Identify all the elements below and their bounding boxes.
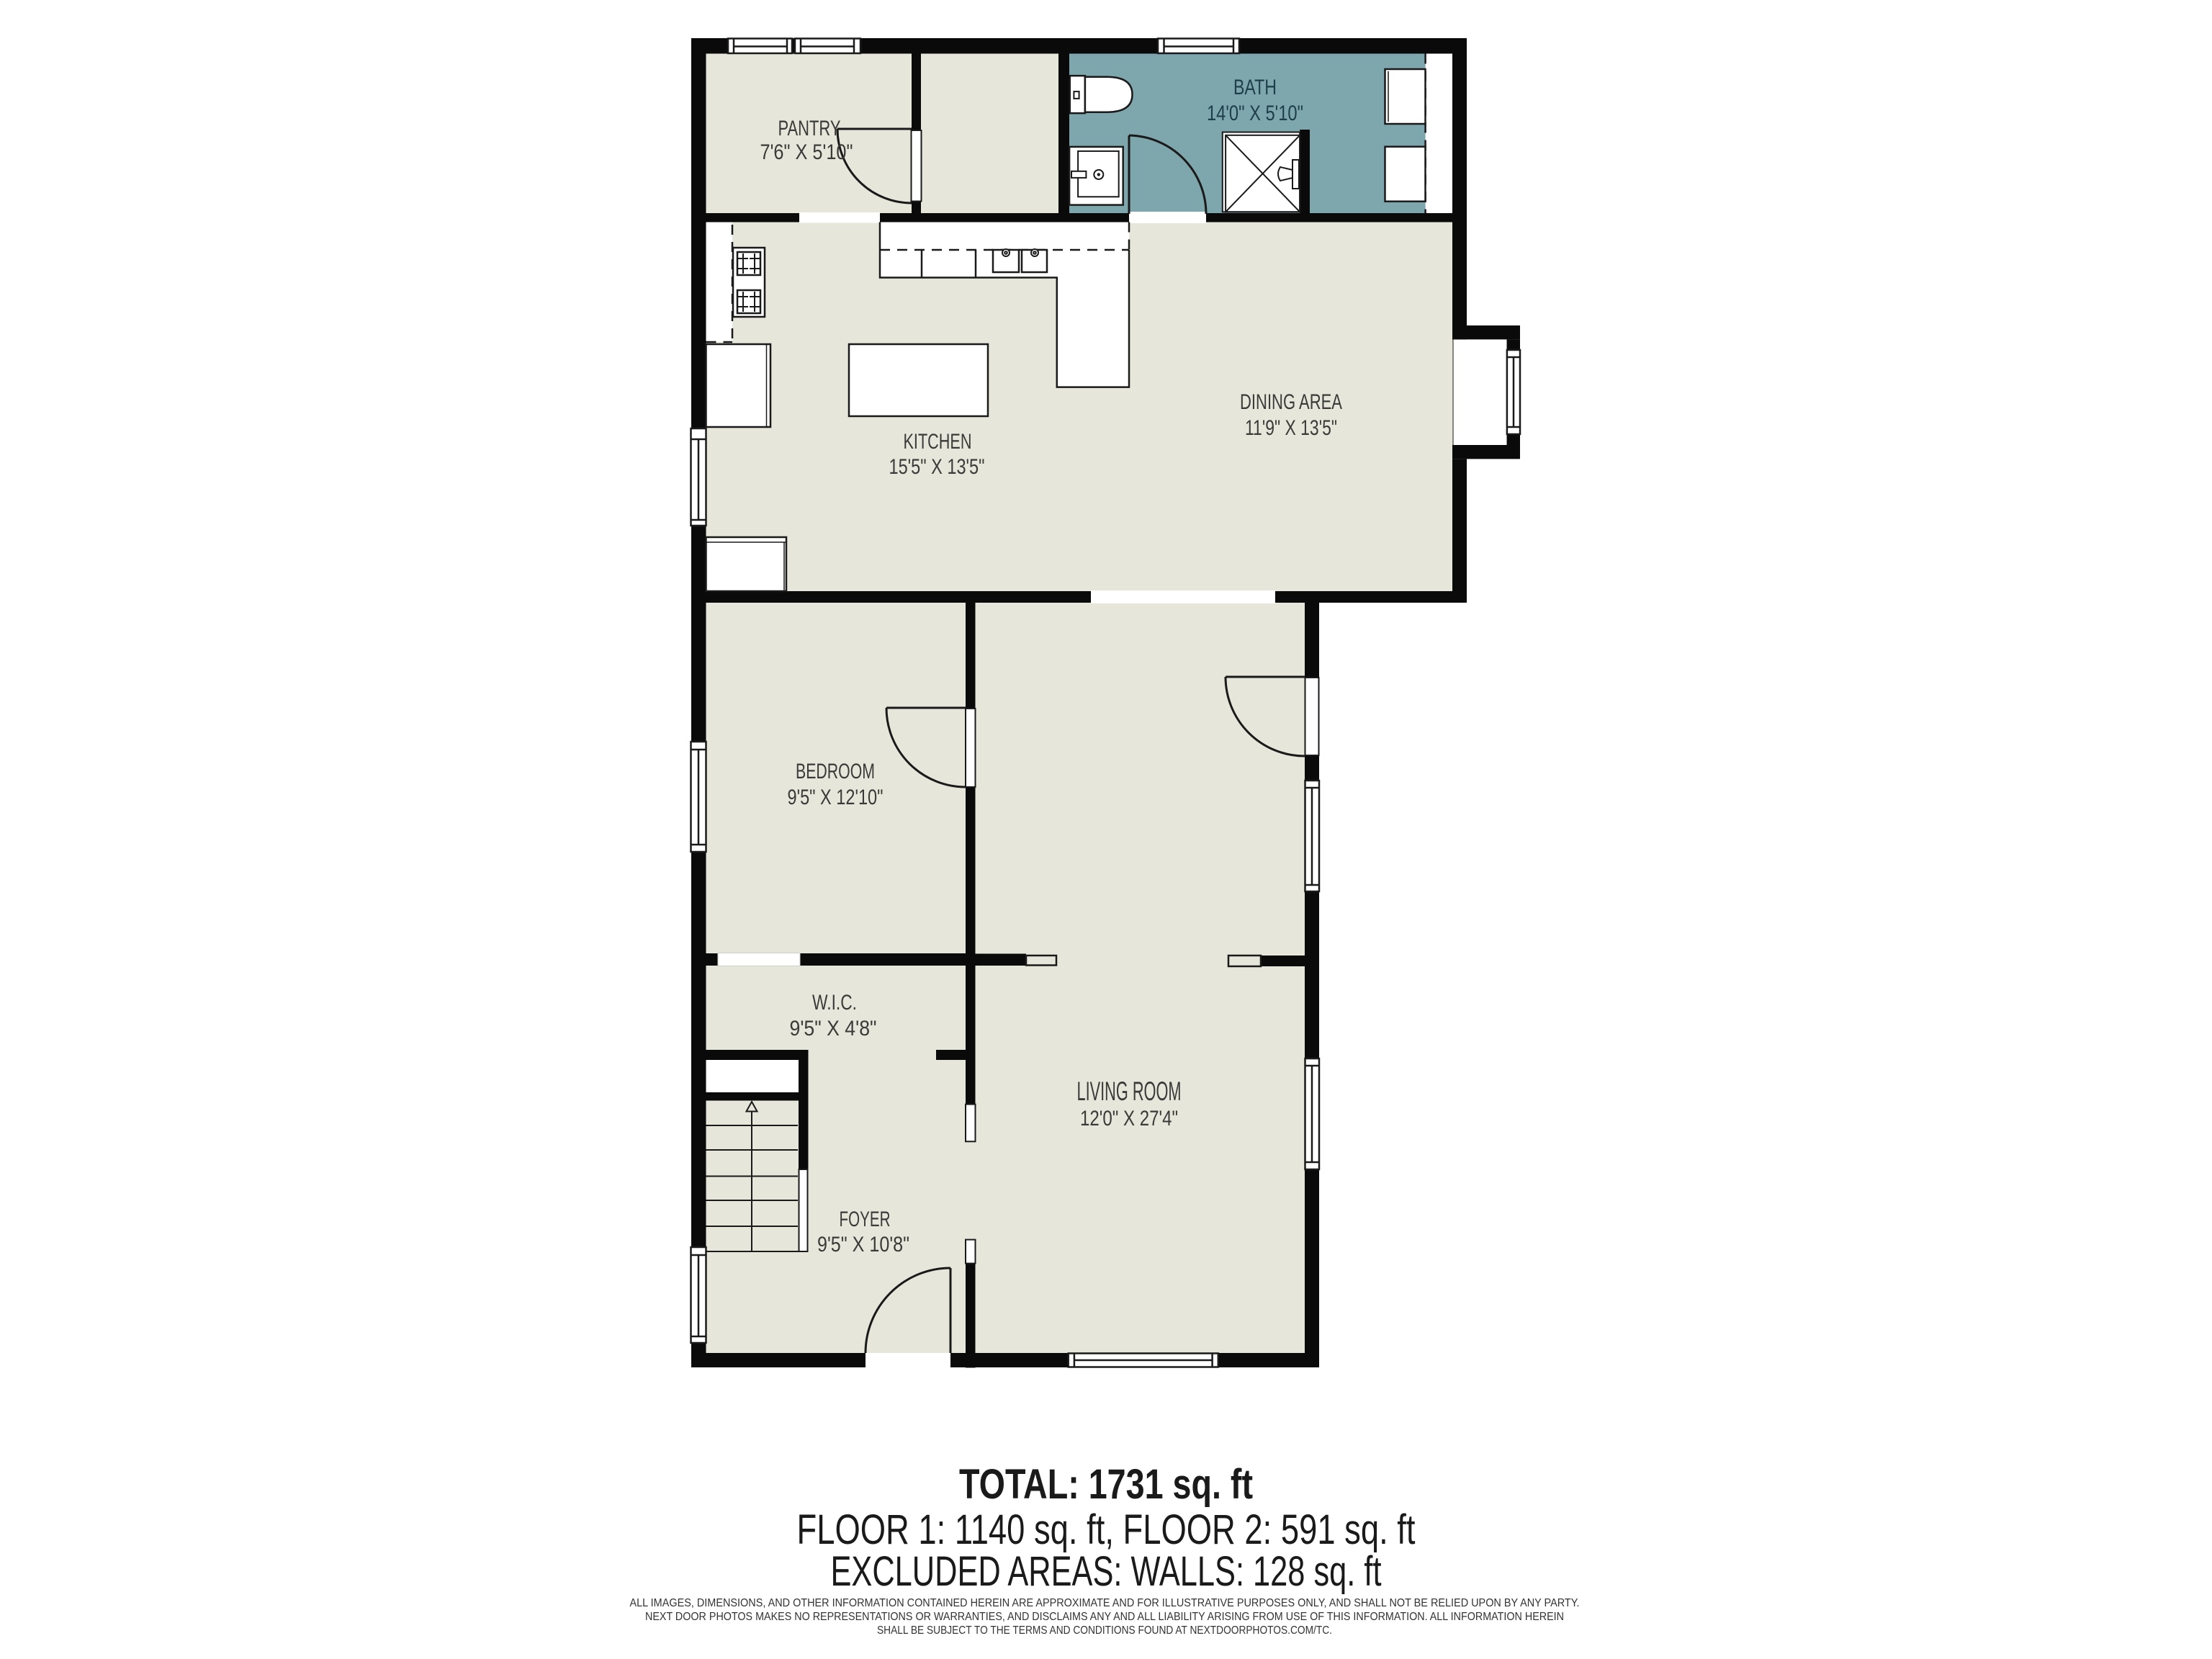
svg-text:SHALL BE SUBJECT TO THE TERMS: SHALL BE SUBJECT TO THE TERMS AND CONDIT… bbox=[877, 1624, 1332, 1637]
svg-text:15'5" X 13'5": 15'5" X 13'5" bbox=[889, 455, 985, 479]
svg-text:EXCLUDED AREAS: WALLS: 128 sq.: EXCLUDED AREAS: WALLS: 128 sq. ft bbox=[831, 1548, 1382, 1595]
svg-text:7'6" X 5'10": 7'6" X 5'10" bbox=[760, 140, 853, 164]
svg-text:BATH: BATH bbox=[1233, 76, 1277, 99]
svg-text:BEDROOM: BEDROOM bbox=[796, 760, 875, 783]
svg-text:PANTRY: PANTRY bbox=[778, 117, 841, 140]
svg-text:ALL IMAGES, DIMENSIONS, AND OT: ALL IMAGES, DIMENSIONS, AND OTHER INFORM… bbox=[630, 1597, 1580, 1609]
svg-text:9'5" X 12'10": 9'5" X 12'10" bbox=[788, 786, 884, 809]
svg-text:LIVING ROOM: LIVING ROOM bbox=[1077, 1076, 1182, 1106]
svg-text:KITCHEN: KITCHEN bbox=[904, 430, 972, 454]
svg-text:9'5" X 10'8": 9'5" X 10'8" bbox=[817, 1233, 909, 1256]
svg-text:11'9" X 13'5": 11'9" X 13'5" bbox=[1245, 416, 1337, 440]
svg-text:FOYER: FOYER bbox=[840, 1208, 891, 1231]
svg-text:9'5" X 4'8": 9'5" X 4'8" bbox=[790, 1017, 877, 1040]
svg-text:14'0" X 5'10": 14'0" X 5'10" bbox=[1207, 102, 1303, 125]
svg-text:W.I.C.: W.I.C. bbox=[812, 991, 857, 1015]
svg-text:FLOOR 1: 1140 sq. ft, FLOOR 2:: FLOOR 1: 1140 sq. ft, FLOOR 2: 591 sq. f… bbox=[797, 1506, 1416, 1553]
svg-text:TOTAL: 1731 sq. ft: TOTAL: 1731 sq. ft bbox=[959, 1461, 1253, 1508]
svg-text:DINING AREA: DINING AREA bbox=[1240, 390, 1342, 414]
svg-text:12'0" X 27'4": 12'0" X 27'4" bbox=[1080, 1107, 1178, 1130]
svg-text:NEXT DOOR PHOTOS MAKES NO REPR: NEXT DOOR PHOTOS MAKES NO REPRESENTATION… bbox=[645, 1611, 1564, 1623]
